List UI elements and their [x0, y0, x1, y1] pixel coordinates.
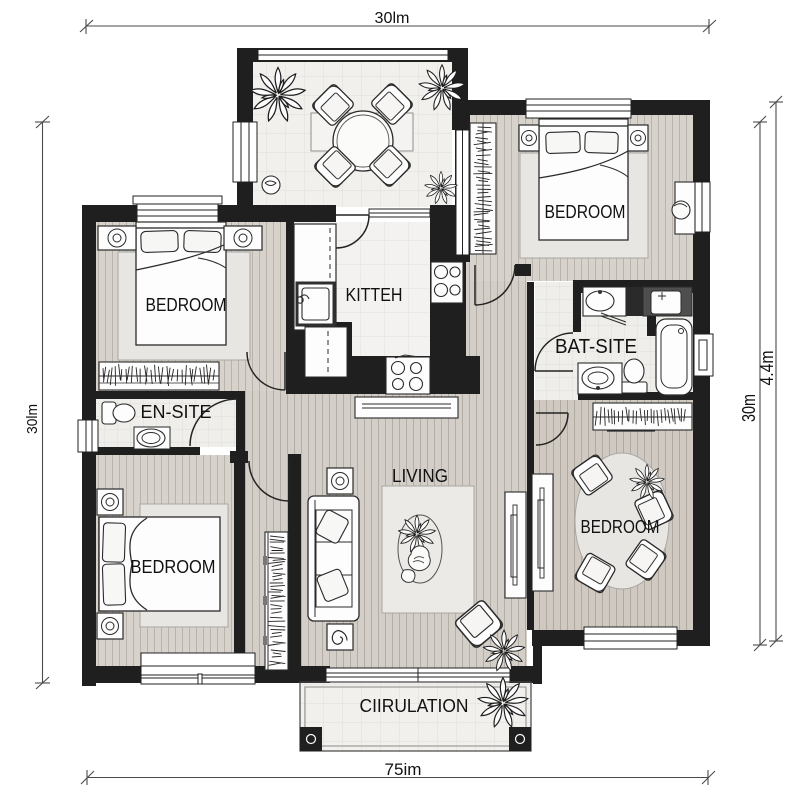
svg-text:30m: 30m — [739, 394, 759, 422]
svg-text:BAT-SITE: BAT-SITE — [555, 336, 637, 358]
svg-text:BEDROOM: BEDROOM — [581, 517, 660, 537]
svg-text:KITTEH: KITTEH — [346, 285, 403, 305]
svg-text:BEDROOM: BEDROOM — [545, 202, 626, 222]
svg-text:BEDROOM: BEDROOM — [146, 295, 227, 315]
svg-text:BEDROOM: BEDROOM — [131, 557, 216, 577]
svg-text:4.4m: 4.4m — [757, 351, 777, 386]
svg-text:EN-SITE: EN-SITE — [141, 402, 212, 422]
svg-text:LIVING: LIVING — [392, 466, 448, 486]
svg-text:30lm: 30lm — [375, 10, 410, 27]
svg-text:30lm: 30lm — [25, 404, 41, 434]
svg-text:CIIRULATION: CIIRULATION — [360, 696, 469, 716]
svg-text:75im: 75im — [385, 760, 422, 779]
